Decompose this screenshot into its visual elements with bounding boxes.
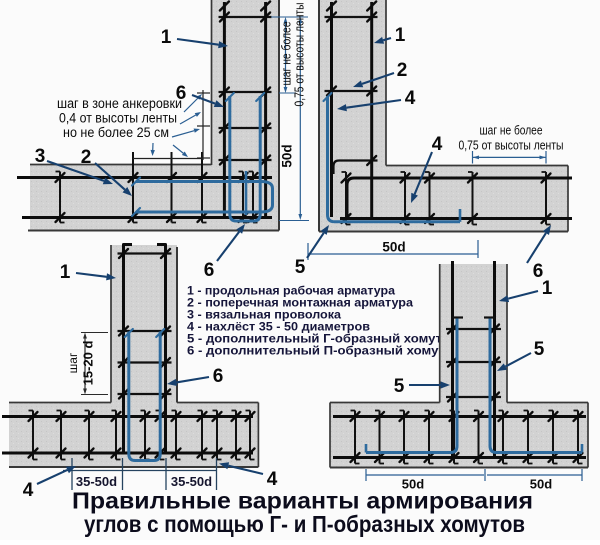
svg-text:50d: 50d — [280, 144, 295, 167]
svg-text:0,75 от высоты ленты: 0,75 от высоты ленты — [459, 139, 564, 153]
svg-text:50d: 50d — [530, 477, 552, 492]
svg-text:1 - продольная рабочая арматур: 1 - продольная рабочая арматура — [187, 286, 396, 298]
svg-text:4 - нахлёст 35 - 50 диаметров: 4 - нахлёст 35 - 50 диаметров — [187, 322, 370, 334]
svg-text:4: 4 — [23, 480, 34, 501]
svg-text:6: 6 — [204, 260, 215, 281]
svg-text:шаг не более: шаг не более — [280, 21, 294, 85]
svg-text:2: 2 — [81, 147, 92, 168]
svg-text:0,4 от высоты ленты: 0,4 от высоты ленты — [59, 111, 177, 126]
svg-text:2 - поперечная монтажная армат: 2 - поперечная монтажная арматура — [187, 298, 414, 310]
svg-text:шаг в зоне анкеровки: шаг в зоне анкеровки — [57, 96, 182, 111]
svg-text:1: 1 — [542, 278, 553, 299]
svg-text:0,75 от высоты ленты: 0,75 от высоты ленты — [293, 2, 307, 106]
svg-text:50d: 50d — [382, 240, 405, 255]
svg-text:но не более 25 см: но не более 25 см — [63, 125, 169, 140]
svg-text:1: 1 — [395, 25, 406, 46]
svg-text:5: 5 — [534, 339, 545, 360]
svg-text:1: 1 — [161, 27, 172, 48]
svg-text:углов с помощью Г- и П-образны: углов с помощью Г- и П-образных хомутов — [84, 511, 525, 537]
svg-text:2: 2 — [397, 60, 408, 81]
svg-text:шаг: шаг — [66, 352, 80, 373]
svg-text:6: 6 — [213, 366, 224, 387]
svg-text:1: 1 — [60, 262, 71, 283]
svg-text:6: 6 — [176, 83, 187, 104]
svg-text:3: 3 — [35, 146, 46, 167]
svg-text:4: 4 — [405, 88, 416, 109]
svg-text:шаг не более: шаг не более — [480, 124, 543, 138]
svg-text:5: 5 — [295, 257, 306, 278]
svg-text:15-20 d: 15-20 d — [81, 341, 96, 386]
svg-text:6 - дополнительный П-образный: 6 - дополнительный П-образный хомут — [187, 346, 445, 358]
svg-text:5: 5 — [394, 376, 405, 397]
svg-text:4: 4 — [432, 134, 443, 155]
svg-text:5 - дополнительный Г-образный: 5 - дополнительный Г-образный хомут — [187, 334, 442, 346]
svg-text:3 - вязальная проволока: 3 - вязальная проволока — [187, 310, 342, 322]
svg-text:Правильные варианты армировани: Правильные варианты армирования — [72, 488, 533, 514]
